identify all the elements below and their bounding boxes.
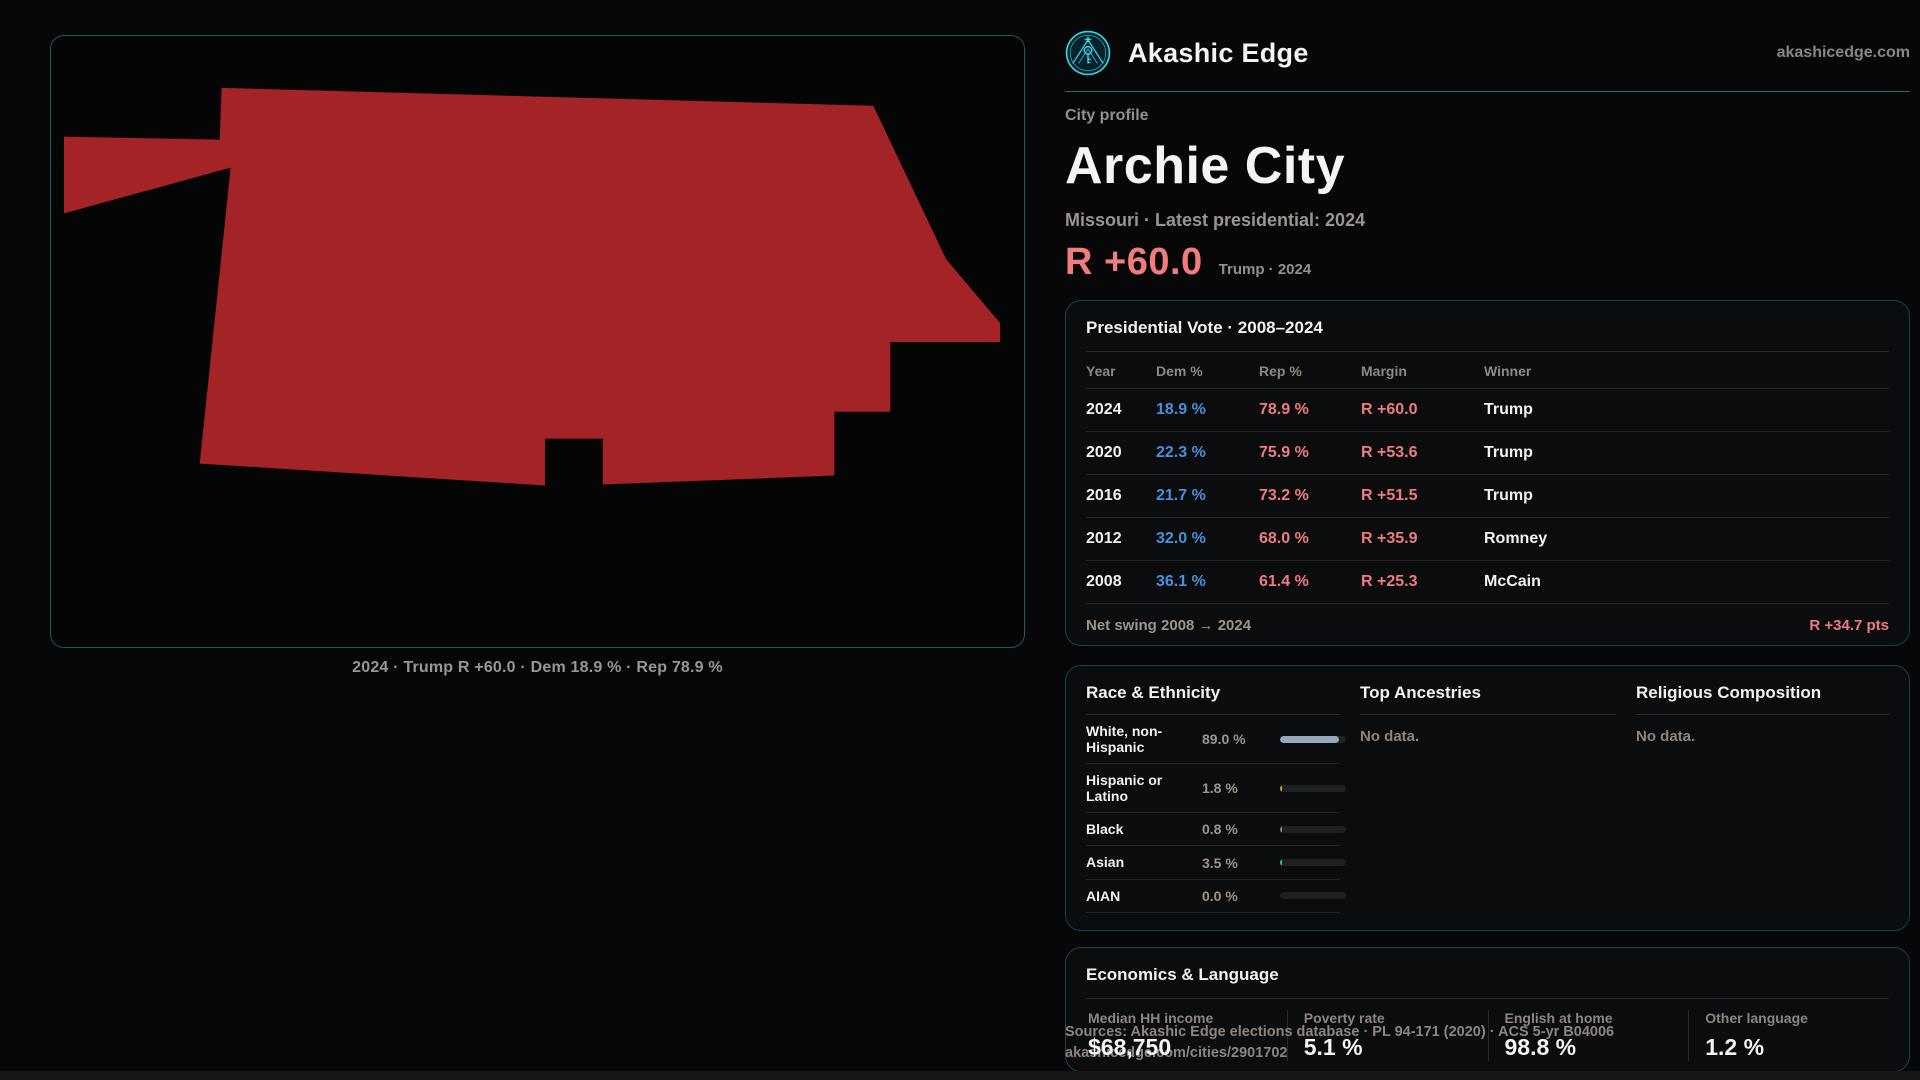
presidential-vote-panel: Presidential Vote · 2008–2024 Year Dem %… [1065,300,1910,646]
ancestries-empty-state: No data. [1360,715,1616,745]
table-row: 2020 22.3 % 75.9 % R +53.6 Trump [1086,432,1889,475]
demographics-panel: Race & Ethnicity White, non-Hispanic 89.… [1065,665,1910,931]
col-winner: Winner [1484,363,1889,379]
site-domain-link[interactable]: akashicedge.com [1777,44,1910,62]
map-canvas[interactable] [51,36,1024,647]
net-swing-label: Net swing 2008 → 2024 [1086,617,1251,634]
page: 2024 · Trump R +60.0 · Dem 18.9 % · Rep … [0,0,1920,1080]
margin-value: R +60.0 [1065,241,1203,284]
eyebrow-label: City profile [1065,107,1149,125]
stat-poverty-rate: Poverty rate 5.1 % [1287,1010,1488,1061]
header-divider [1065,91,1910,92]
city-boundary-polygon[interactable] [64,88,1000,486]
race-section-title: Race & Ethnicity [1086,666,1340,715]
stat-english-at-home: English at home 98.8 % [1488,1010,1689,1061]
religious-composition-section: Religious Composition No data. [1636,666,1889,913]
stat-other-language: Other language 1.2 % [1688,1010,1889,1061]
religion-section-title: Religious Composition [1636,666,1889,715]
window-bottom-edge [0,1071,1920,1080]
table-row: 2024 18.9 % 78.9 % R +60.0 Trump [1086,389,1889,432]
ancestries-section-title: Top Ancestries [1360,666,1616,715]
col-year: Year [1086,363,1156,379]
race-row: White, non-Hispanic 89.0 % [1086,715,1340,764]
race-row: Hispanic or Latino 1.8 % [1086,764,1340,813]
site-header: Akashic Edge akashicedge.com [1065,30,1910,76]
top-ancestries-section: Top Ancestries No data. [1360,666,1616,913]
col-dem: Dem % [1156,363,1259,379]
table-row: 2008 36.1 % 61.4 % R +25.3 McCain [1086,561,1889,604]
map-caption: 2024 · Trump R +60.0 · Dem 18.9 % · Rep … [50,659,1025,677]
state-subtitle: Missouri · Latest presidential: 2024 [1065,210,1365,231]
table-row: 2016 21.7 % 73.2 % R +51.5 Trump [1086,475,1889,518]
table-row: 2012 32.0 % 68.0 % R +35.9 Romney [1086,518,1889,561]
elections-table-header: Year Dem % Rep % Margin Winner [1086,352,1889,389]
race-bar [1280,785,1346,792]
race-row: AIAN 0.0 % [1086,880,1340,913]
race-bar [1280,859,1346,866]
race-row: Black 0.8 % [1086,813,1340,846]
race-bar [1280,892,1346,899]
profile-column: Akashic Edge akashicedge.com City profil… [1065,0,1910,1080]
race-bar [1280,736,1346,743]
stat-median-income: Median HH income $68,750 [1086,1010,1287,1061]
elections-panel-title: Presidential Vote · 2008–2024 [1086,301,1889,352]
page-title: Archie City [1065,136,1345,196]
margin-context: Trump · 2024 [1219,261,1312,278]
col-margin: Margin [1361,363,1484,379]
net-swing-value: R +34.7 pts [1809,617,1889,634]
race-ethnicity-section: Race & Ethnicity White, non-Hispanic 89.… [1086,666,1340,913]
akashic-edge-logo-icon [1065,30,1111,76]
brand-name: Akashic Edge [1128,38,1309,69]
economics-panel-title: Economics & Language [1086,948,1889,999]
margin-headline: R +60.0 Trump · 2024 [1065,241,1311,284]
col-rep: Rep % [1259,363,1361,379]
race-bar [1280,826,1346,833]
religion-empty-state: No data. [1636,715,1889,745]
city-map-card [50,35,1025,648]
race-row: Asian 3.5 % [1086,846,1340,879]
net-swing-row: Net swing 2008 → 2024 R +34.7 pts [1086,604,1889,647]
